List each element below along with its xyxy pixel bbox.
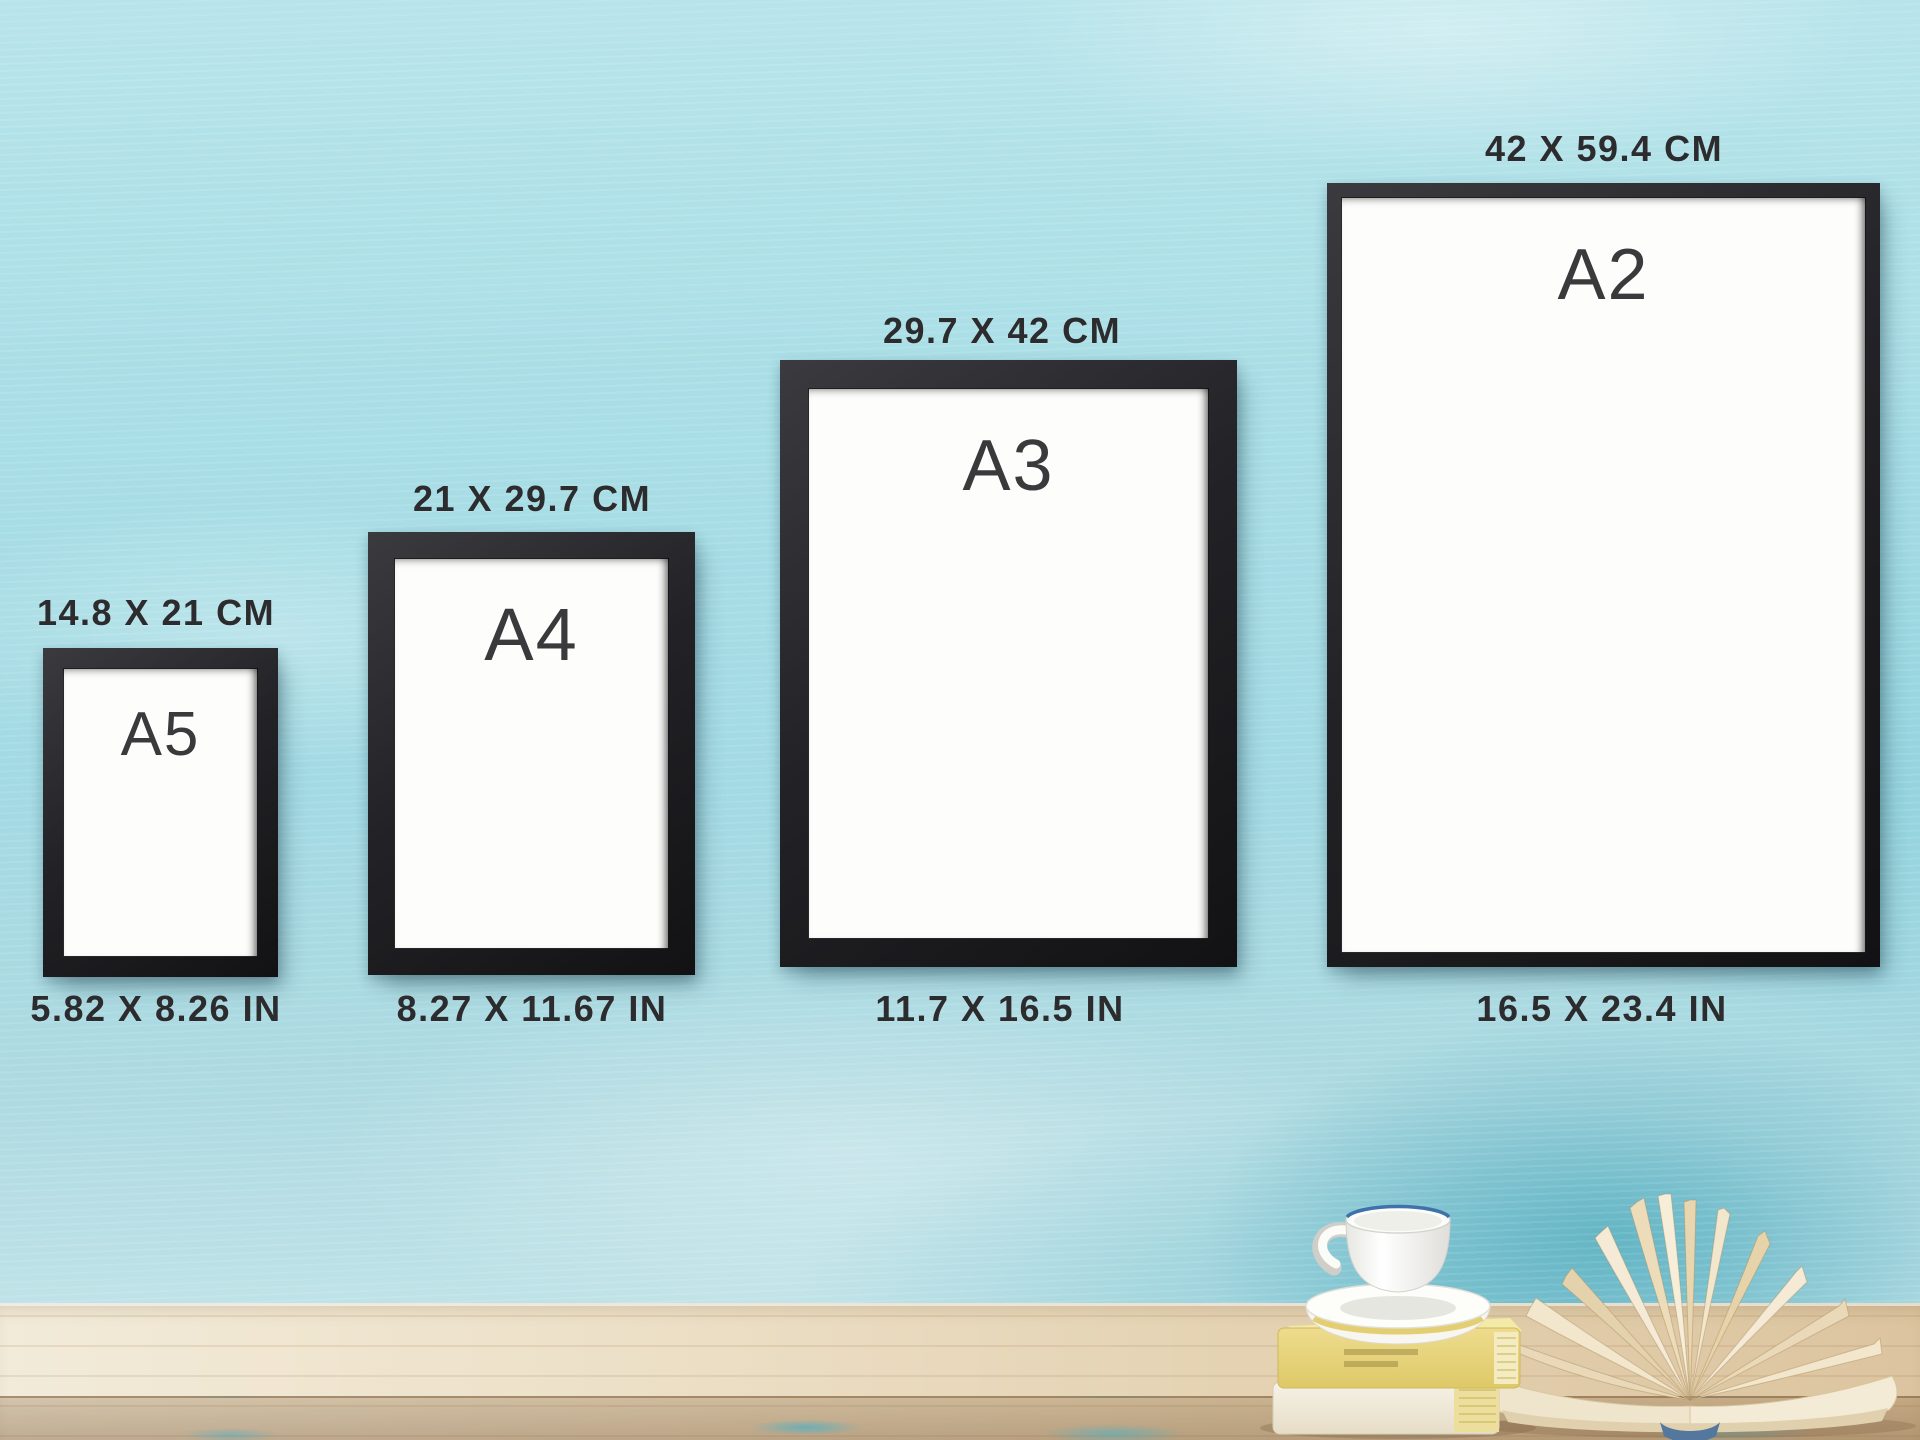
a5-paper: A5 [63, 668, 258, 957]
a2-metric-label: 42 X 59.4 CM [1485, 128, 1723, 170]
a5-frame: A5 [43, 648, 278, 977]
a2-size-name: A2 [1341, 239, 1866, 311]
a3-size-name: A3 [808, 430, 1209, 502]
a5-imperial-label: 5.82 X 8.26 IN [30, 988, 281, 1030]
open-book-icon [1492, 1194, 1897, 1440]
still-life-graphic [1258, 1168, 1918, 1440]
a4-paper: A4 [394, 558, 669, 949]
poster-size-comparison-scene: 14.8 X 21 CM A5 5.82 X 8.26 IN 21 X 29.7… [0, 0, 1920, 1440]
a5-metric-label: 14.8 X 21 CM [37, 592, 275, 634]
a4-metric-label: 21 X 29.7 CM [413, 478, 651, 520]
a3-metric-label: 29.7 X 42 CM [883, 310, 1121, 352]
coffee-cup-icon [1306, 1207, 1490, 1344]
a4-imperial-label: 8.27 X 11.67 IN [397, 988, 668, 1030]
a3-paper: A3 [808, 388, 1209, 939]
a4-size-name: A4 [394, 598, 669, 672]
a3-imperial-label: 11.7 X 16.5 IN [875, 988, 1124, 1030]
a3-frame: A3 [780, 360, 1237, 967]
a4-frame: A4 [368, 532, 695, 975]
a2-paper: A2 [1341, 197, 1866, 953]
a2-frame: A2 [1327, 183, 1880, 967]
a5-size-name: A5 [63, 704, 258, 766]
a2-imperial-label: 16.5 X 23.4 IN [1476, 988, 1727, 1030]
